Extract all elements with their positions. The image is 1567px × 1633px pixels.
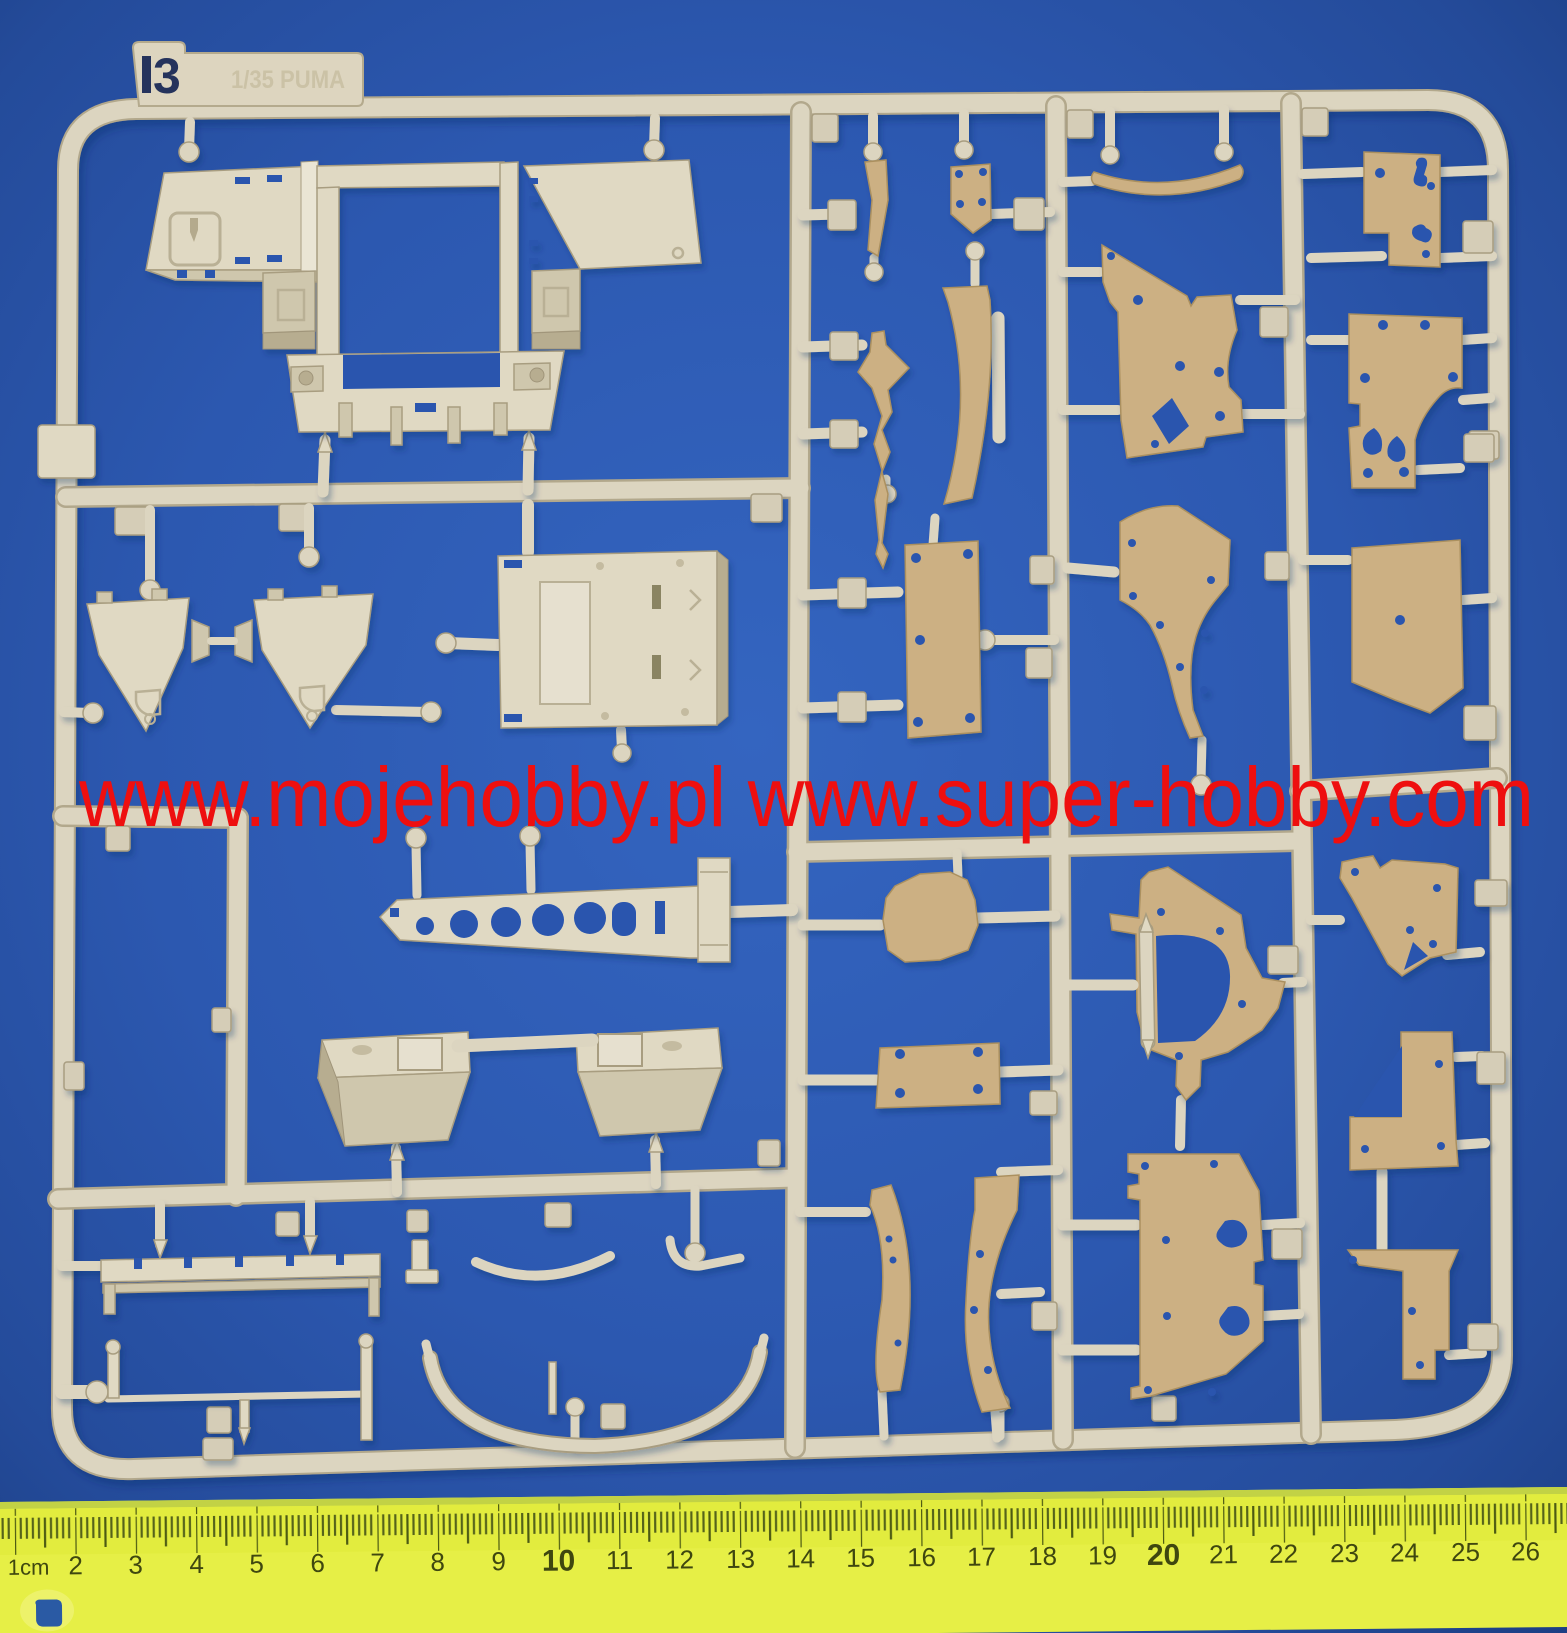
svg-text:22: 22 bbox=[1269, 1539, 1298, 1569]
svg-text:8: 8 bbox=[430, 1547, 445, 1577]
svg-text:3: 3 bbox=[128, 1550, 143, 1580]
svg-text:10: 10 bbox=[542, 1544, 576, 1577]
svg-text:www.mojehobby.pl www.super-hob: www.mojehobby.pl www.super-hobby.com bbox=[78, 750, 1534, 844]
svg-text:9: 9 bbox=[491, 1546, 506, 1576]
svg-text:18: 18 bbox=[1028, 1541, 1057, 1571]
svg-text:21: 21 bbox=[1209, 1539, 1238, 1569]
svg-text:23: 23 bbox=[1330, 1538, 1359, 1568]
svg-text:16: 16 bbox=[907, 1542, 936, 1572]
svg-text:13: 13 bbox=[726, 1544, 755, 1574]
svg-text:6: 6 bbox=[310, 1548, 325, 1578]
svg-text:19: 19 bbox=[1088, 1540, 1117, 1570]
svg-text:15: 15 bbox=[846, 1543, 875, 1573]
svg-text:3: 3 bbox=[153, 48, 181, 104]
svg-text:1/35 PUMA: 1/35 PUMA bbox=[231, 66, 345, 94]
svg-text:17: 17 bbox=[967, 1541, 996, 1571]
svg-text:14: 14 bbox=[786, 1543, 815, 1573]
svg-text:2: 2 bbox=[68, 1550, 83, 1580]
svg-text:4: 4 bbox=[189, 1549, 204, 1579]
svg-text:25: 25 bbox=[1451, 1537, 1480, 1567]
svg-text:11: 11 bbox=[606, 1545, 633, 1575]
svg-text:20: 20 bbox=[1147, 1539, 1181, 1572]
svg-text:1cm: 1cm bbox=[8, 1555, 50, 1580]
svg-text:26: 26 bbox=[1511, 1536, 1540, 1566]
svg-text:24: 24 bbox=[1390, 1537, 1419, 1567]
svg-text:12: 12 bbox=[665, 1544, 694, 1574]
svg-text:7: 7 bbox=[370, 1547, 385, 1577]
svg-text:5: 5 bbox=[249, 1548, 264, 1578]
